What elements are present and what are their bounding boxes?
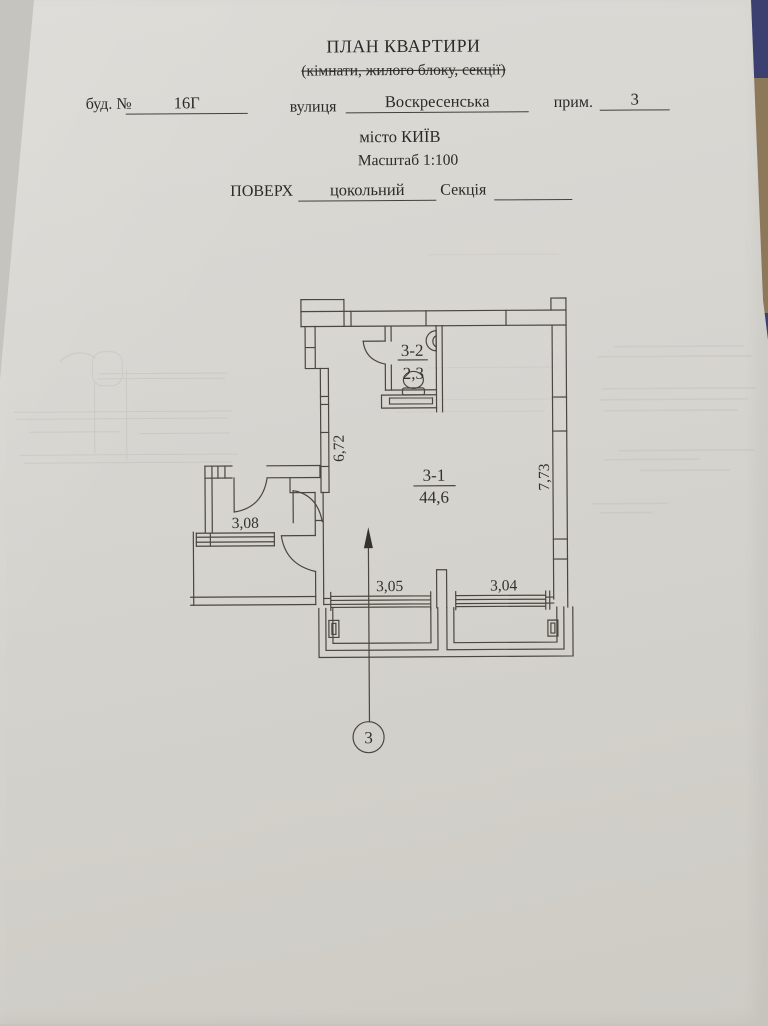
hallway-door-arc-1 xyxy=(234,478,267,512)
section-arrow-icon xyxy=(364,527,373,548)
left-wall-upper xyxy=(305,326,328,368)
top-wall xyxy=(301,298,566,327)
dim-hallway-label: 3,08 xyxy=(232,515,259,532)
bleed-through-ghost-right xyxy=(591,346,756,513)
dim-left-wall-label: 6,72 xyxy=(331,435,348,462)
main-room-area-label: 44,6 xyxy=(419,488,449,507)
bleed-through-ghost-left xyxy=(13,351,238,463)
terrace-outlines xyxy=(319,607,573,658)
bottom-windows xyxy=(324,569,554,610)
hallway-door-arc-3 xyxy=(281,536,315,572)
section-marker-number: 3 xyxy=(364,728,373,747)
sink-icon xyxy=(426,331,436,351)
section-marker xyxy=(352,527,384,753)
main-room-id-label: 3-1 xyxy=(423,466,446,485)
bathroom-door-arc xyxy=(363,341,385,364)
document-content: ПЛАН КВАРТИРИ (кімнати, жилого блоку, се… xyxy=(0,0,768,1026)
dim-window-1-label: 3,05 xyxy=(376,578,403,595)
left-wall-window xyxy=(320,368,329,492)
right-wall xyxy=(552,298,568,607)
bathroom-id-label: 3-2 xyxy=(401,341,424,360)
bathroom-area-label: 2,3 xyxy=(403,364,424,383)
floor-plan-svg: 3-2 2,3 3-1 44,6 6,72 7,73 3,08 3,05 3,0… xyxy=(0,0,768,1026)
dim-window-2-label: 3,04 xyxy=(490,577,517,594)
dim-right-wall-label: 7,73 xyxy=(536,463,553,490)
hallway-door-arc-2 xyxy=(293,490,322,522)
